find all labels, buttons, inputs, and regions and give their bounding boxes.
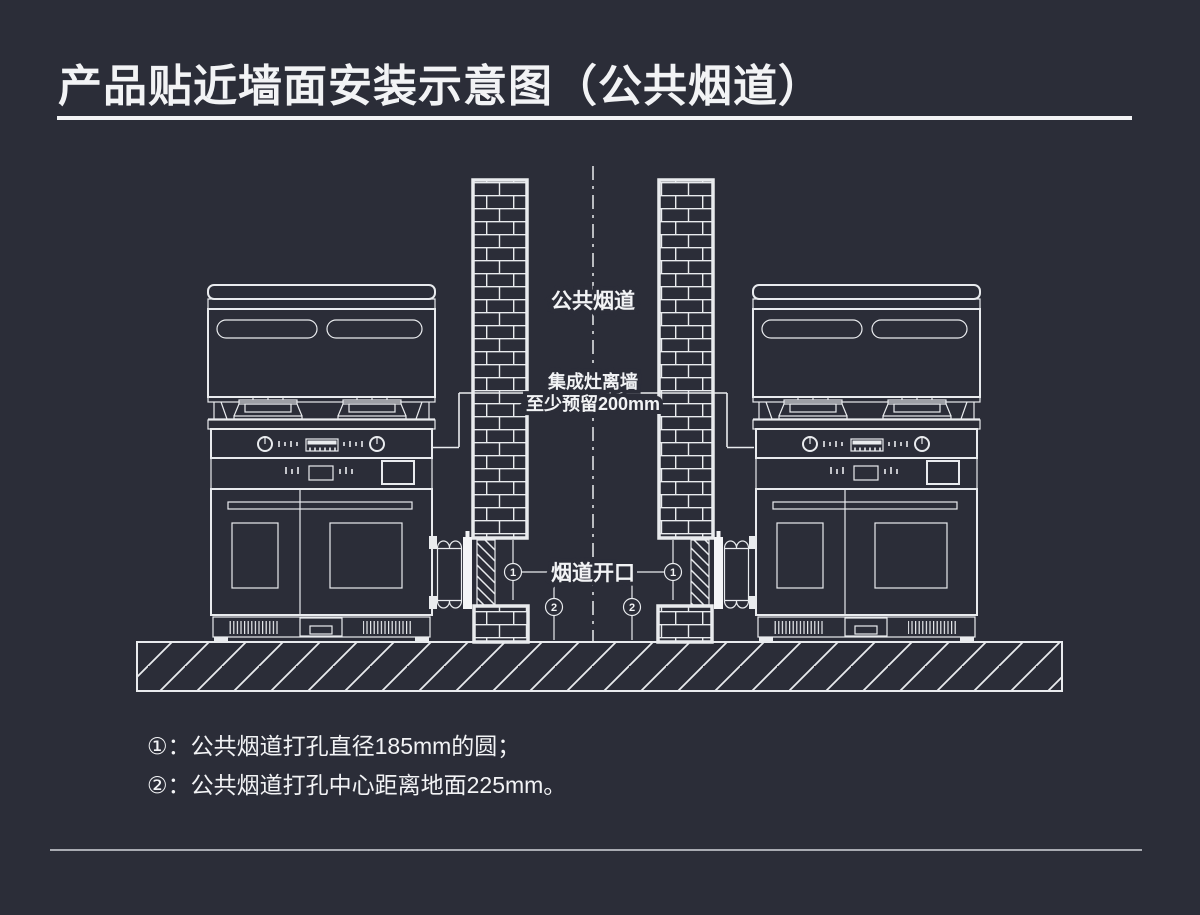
chimney-wall-right — [658, 180, 713, 642]
svg-text:1: 1 — [510, 567, 516, 579]
callout-1-right: 1 — [665, 564, 682, 581]
label-flue-opening: 烟道开口 — [551, 561, 635, 585]
callout-2-right: 2 — [624, 599, 641, 616]
label-gap-line1: 集成灶离墙 — [547, 371, 638, 392]
bottom-divider — [50, 849, 1142, 851]
label-common-flue: 公共烟道 — [551, 289, 635, 313]
duct-left — [429, 531, 472, 609]
stove-right — [753, 285, 980, 642]
callout-1-left: 1 — [505, 564, 522, 581]
note-2: ②：公共烟道打孔中心距离地面225mm。 — [147, 766, 566, 800]
svg-text:2: 2 — [551, 602, 557, 614]
chimney-wall-left — [473, 180, 528, 642]
callout-2-left: 2 — [546, 599, 563, 616]
note-1: ①：公共烟道打孔直径185mm的圆； — [147, 727, 520, 761]
label-gap-line2: 至少预留200mm — [526, 393, 660, 414]
ground-slab — [137, 642, 1062, 691]
duct-right — [714, 531, 757, 609]
svg-text:2: 2 — [629, 602, 635, 614]
svg-text:1: 1 — [670, 567, 676, 579]
stove-left — [208, 285, 435, 642]
